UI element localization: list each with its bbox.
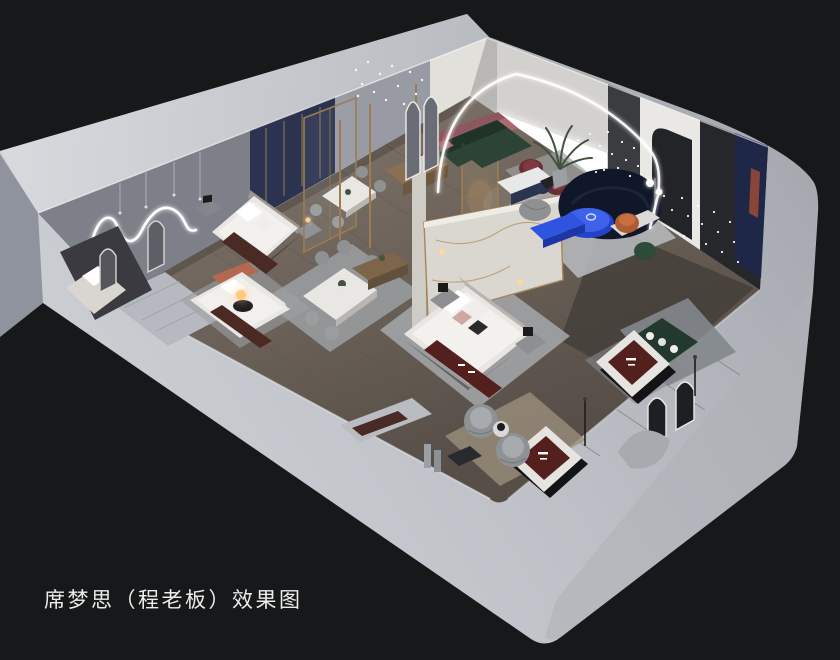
render-caption: 席梦思（程老板）效果图	[44, 584, 303, 614]
arch-mirror	[100, 249, 116, 292]
glow-sphere-lamp	[236, 290, 246, 300]
showroom-render	[0, 0, 840, 660]
pendant-bulb	[517, 279, 522, 284]
side-table	[233, 300, 253, 312]
arch-mirror	[148, 221, 164, 272]
pendant-bulb	[439, 249, 444, 254]
render-canvas: 席梦思（程老板）效果图	[0, 0, 840, 660]
green-accent-chair	[634, 242, 656, 260]
ribbed-pouf	[519, 199, 551, 221]
